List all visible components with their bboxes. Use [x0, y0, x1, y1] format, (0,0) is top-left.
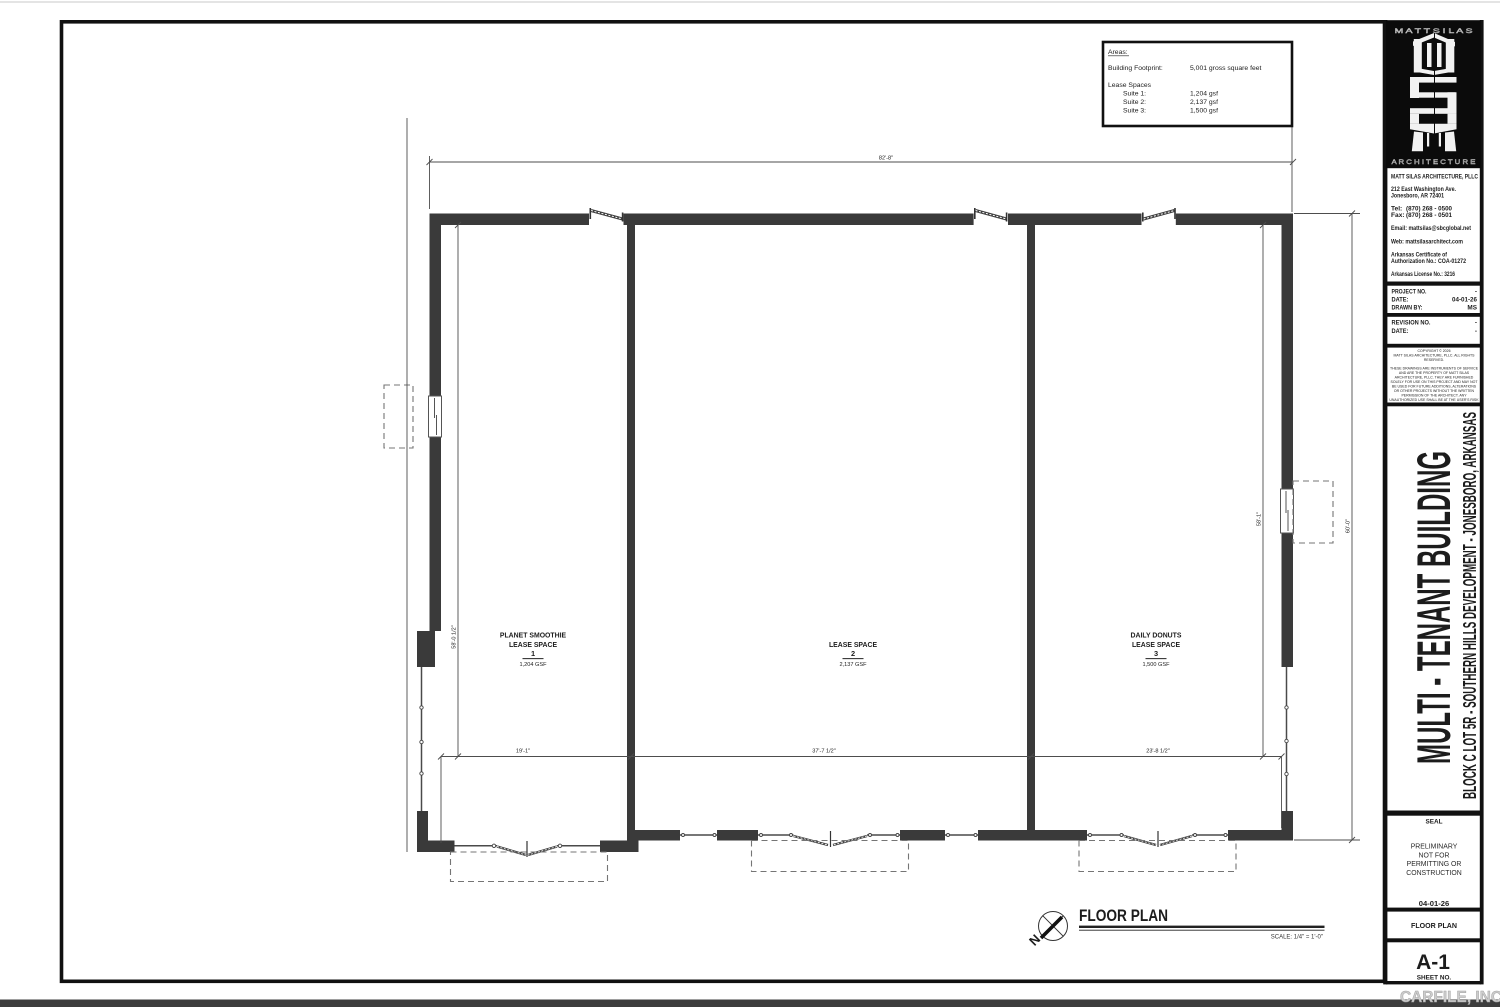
svg-text:Lease Spaces: Lease Spaces	[1108, 82, 1152, 89]
svg-text:23'-8 1/2": 23'-8 1/2"	[1146, 749, 1170, 755]
svg-text:Suite 1:: Suite 1:	[1123, 91, 1146, 98]
svg-text:FLOOR PLAN: FLOOR PLAN	[1079, 907, 1168, 925]
svg-text:MATT SILAS ARCHITECTURE, PLLC.: MATT SILAS ARCHITECTURE, PLLC. ALL RIGHT…	[1393, 354, 1475, 358]
svg-text:3: 3	[1154, 649, 1158, 658]
svg-text:1: 1	[531, 649, 535, 658]
svg-text:-: -	[1475, 289, 1477, 296]
svg-text:MULTI - TENANT BUILDING: MULTI - TENANT BUILDING	[1407, 451, 1460, 764]
svg-text:PLANET SMOOTHIE: PLANET SMOOTHIE	[500, 633, 567, 640]
svg-text:SCALE: 1/4" = 1'-0": SCALE: 1/4" = 1'-0"	[1271, 935, 1323, 941]
svg-text:UNAUTHORIZED USE SHALL BE AT T: UNAUTHORIZED USE SHALL BE AT THE USER'S …	[1389, 398, 1479, 402]
svg-text:THESE DRAWINGS ARE INSTRUMENTS: THESE DRAWINGS ARE INSTRUMENTS OF SERVIC…	[1390, 367, 1479, 371]
svg-text:FLOOR PLAN: FLOOR PLAN	[1411, 921, 1457, 930]
svg-text:19'-1": 19'-1"	[516, 749, 530, 755]
svg-text:37'-7 1/2": 37'-7 1/2"	[812, 749, 836, 755]
svg-text:DATE:: DATE:	[1392, 297, 1409, 304]
svg-text:-: -	[1475, 328, 1477, 335]
svg-text:LEASE SPACE: LEASE SPACE	[509, 642, 558, 649]
svg-text:AND ARE THE PROPERTY OF MATT S: AND ARE THE PROPERTY OF MATT SILAS	[1399, 371, 1470, 375]
svg-text:REVISION NO.: REVISION NO.	[1392, 320, 1431, 327]
svg-text:Email: mattsilas@sbcglobal.net: Email: mattsilas@sbcglobal.net	[1391, 225, 1472, 232]
svg-text:SHEET NO.: SHEET NO.	[1417, 975, 1452, 982]
svg-text:SEAL: SEAL	[1425, 819, 1442, 826]
svg-text:PRELIMINARY: PRELIMINARY	[1411, 844, 1458, 851]
svg-text:PERMISSION OF THE ARCHITECT. A: PERMISSION OF THE ARCHITECT. ANY	[1401, 394, 1467, 398]
svg-text:1,204 gsf: 1,204 gsf	[1190, 91, 1218, 98]
svg-text:82'-8": 82'-8"	[879, 156, 893, 162]
svg-text:A R C H I T E C T U R E: A R C H I T E C T U R E	[1392, 159, 1476, 166]
svg-text:CARFILE, INC: CARFILE, INC	[1400, 989, 1500, 1006]
svg-text:PERMITTING OR: PERMITTING OR	[1407, 861, 1462, 868]
svg-text:Jonesboro, AR 72401: Jonesboro, AR 72401	[1391, 193, 1444, 200]
svg-text:COPYRIGHT © 2026: COPYRIGHT © 2026	[1417, 349, 1450, 353]
svg-text:2: 2	[851, 649, 855, 658]
svg-text:ARCHITECTURE, PLLC. THEY ARE F: ARCHITECTURE, PLLC. THEY ARE FURNISHED	[1395, 376, 1474, 380]
svg-text:DRAWN BY:: DRAWN BY:	[1392, 305, 1423, 312]
svg-text:DATE:: DATE:	[1392, 328, 1409, 335]
svg-text:-: -	[1475, 320, 1477, 327]
svg-text:Fax:: Fax:	[1391, 212, 1405, 219]
svg-text:CONSTRUCTION: CONSTRUCTION	[1406, 870, 1462, 877]
svg-text:2,137 GSF: 2,137 GSF	[839, 662, 867, 668]
svg-text:DAILY DONUTS: DAILY DONUTS	[1131, 633, 1182, 640]
svg-text:1,500 GSF: 1,500 GSF	[1142, 662, 1170, 668]
svg-text:SOLELY FOR USE ON THIS PROJECT: SOLELY FOR USE ON THIS PROJECT AND MAY N…	[1391, 380, 1479, 384]
svg-text:04-01-26: 04-01-26	[1452, 297, 1477, 304]
svg-text:NOT FOR: NOT FOR	[1419, 852, 1450, 859]
svg-text:Arkansas License No.: 3216: Arkansas License No.: 3216	[1391, 271, 1455, 278]
svg-text:Areas:: Areas:	[1108, 49, 1128, 56]
svg-text:LEASE SPACE: LEASE SPACE	[829, 642, 878, 649]
svg-text:OR OTHER PROJECTS WITHOUT THE: OR OTHER PROJECTS WITHOUT THE WRITTEN	[1394, 389, 1475, 393]
svg-text:RESERVED.: RESERVED.	[1424, 358, 1444, 362]
svg-text:Web: mattsilasarchitect.com: Web: mattsilasarchitect.com	[1391, 239, 1463, 246]
svg-text:LEASE SPACE: LEASE SPACE	[1132, 642, 1181, 649]
svg-text:58'-0 1/2": 58'-0 1/2"	[452, 625, 458, 649]
svg-text:BE USED FOR FUTURE ADDITIONS,: BE USED FOR FUTURE ADDITIONS, ALTERATION…	[1392, 385, 1477, 389]
svg-text:58'-1": 58'-1"	[1257, 512, 1263, 526]
svg-text:A-1: A-1	[1416, 951, 1450, 974]
svg-text:BLOCK C LOT 5R - SOUTHERN HIL: BLOCK C LOT 5R - SOUTHERN HILLS DEVELOPM…	[1459, 412, 1480, 799]
svg-text:60'-0": 60'-0"	[1346, 519, 1352, 533]
svg-text:1,500 gsf: 1,500 gsf	[1190, 108, 1218, 115]
svg-text:2,137 gsf: 2,137 gsf	[1190, 99, 1218, 106]
svg-text:Building Footprint:: Building Footprint:	[1108, 65, 1163, 72]
svg-text:Suite 3:: Suite 3:	[1123, 108, 1146, 115]
svg-text:04-01-26: 04-01-26	[1419, 899, 1449, 908]
svg-text:5,001 gross square feet: 5,001 gross square feet	[1190, 65, 1262, 72]
svg-text:PROJECT NO.: PROJECT NO.	[1392, 289, 1427, 296]
svg-text:(870) 268 - 0501: (870) 268 - 0501	[1406, 212, 1452, 219]
svg-text:MS: MS	[1467, 305, 1477, 312]
svg-text:Suite 2:: Suite 2:	[1123, 99, 1146, 106]
svg-text:MATT SILAS ARCHITECTURE, PL: MATT SILAS ARCHITECTURE, PLLC	[1391, 174, 1478, 181]
svg-text:Authorization No.: COA-01272: Authorization No.: COA-01272	[1391, 258, 1466, 265]
svg-text:1,204 GSF: 1,204 GSF	[519, 662, 547, 668]
